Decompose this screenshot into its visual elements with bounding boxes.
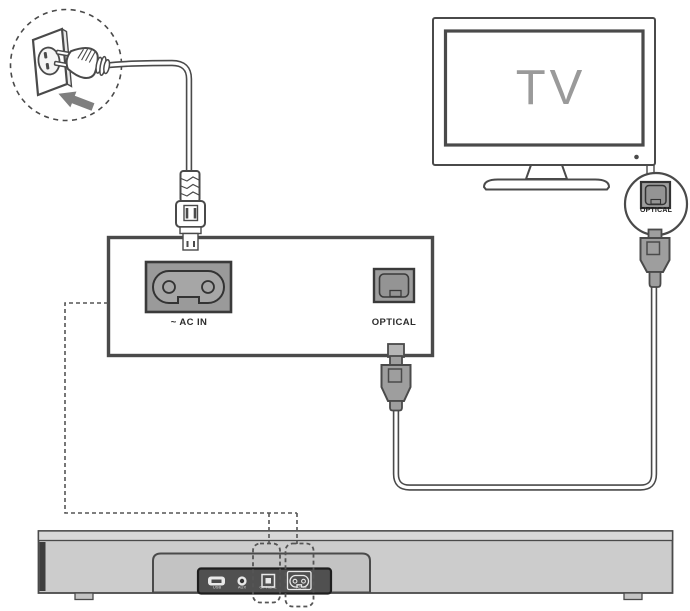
tv-connector-boot	[650, 272, 661, 287]
soundbar-foot-right	[624, 593, 642, 600]
optical-connector-body	[382, 365, 411, 401]
soundbar-usb-label: USB	[207, 585, 227, 590]
tv-optical-port-tab	[651, 200, 661, 205]
tv-optical-callout	[625, 173, 687, 235]
soundbar-aux-label: AUX	[232, 585, 252, 590]
ac-pin-left	[163, 281, 175, 293]
ac-pin-right	[202, 281, 214, 293]
optical-connector-tip	[388, 344, 404, 357]
tv-optical-label: OPTICAL	[630, 207, 682, 214]
tv-stand-base	[484, 180, 609, 190]
connector-collar	[180, 227, 201, 234]
connection-diagram: TV OPTICAL ~ AC IN OPTICAL USB AUX OPTIC…	[0, 0, 690, 611]
optical-connector-tv	[641, 230, 670, 288]
ac-in-socket	[146, 262, 231, 312]
connector-tip	[183, 234, 198, 251]
soundbar-foot-left	[75, 593, 93, 600]
tv-screen-label: TV	[451, 60, 651, 116]
panel-optical-label: OPTICAL	[359, 317, 429, 328]
optical-connector-boot	[390, 401, 402, 411]
optical-port-panel	[374, 269, 414, 302]
tv-stand-neck	[526, 165, 567, 179]
tv-power-led	[634, 155, 639, 160]
soundbar-optical-label: OPTICAL	[258, 585, 278, 590]
soundbar-ac-in-label: ~AC IN	[290, 585, 310, 590]
soundbar-left-cap	[40, 542, 46, 591]
panel-ac-in-label: ~ AC IN	[154, 317, 224, 328]
optical-connector-neck	[390, 356, 402, 365]
soundbar-top-strip	[39, 531, 673, 541]
optical-cable	[396, 286, 654, 488]
soundbar	[39, 531, 673, 600]
